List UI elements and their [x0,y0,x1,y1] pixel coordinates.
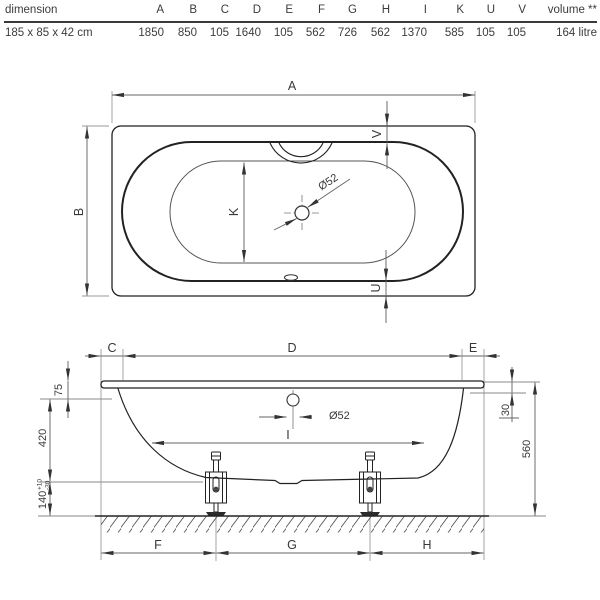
dim-label-30: 30 [500,404,512,416]
adjustable-foot-right [360,452,381,517]
top-view: A B Ø52 [72,79,475,323]
dim-label-140-minus: -30 [45,480,52,490]
dim-label-140-plus: +10 [37,479,44,490]
dim-label-H: H [422,538,431,552]
side-view: C D E [37,341,547,561]
floor-hatch [101,517,484,533]
dim-C: C [85,341,123,356]
dim-E: E [462,341,500,356]
dim-75: 75 [53,361,68,418]
dim-label-75: 75 [53,384,65,396]
technical-drawing-page: dimension A B C D E F G H I K U V volume… [0,0,600,600]
dim-label-V: V [370,129,384,138]
bathtub-drawing: A B Ø52 [0,0,600,600]
dim-G: G [217,538,370,553]
rim-bar [101,381,484,388]
tub-rim [122,142,463,281]
dim-label-140: 140 [37,491,49,509]
dim-label-C: C [107,341,116,355]
drain-plan: Ø52 [274,172,350,231]
dim-label-D: D [287,341,296,355]
dim-F: F [102,538,216,553]
dim-label-U: U [369,283,383,292]
dim-A: A [112,79,475,123]
drain-circle [295,206,309,220]
drain-diameter-label: Ø52 [316,172,340,193]
dim-V: V [370,101,387,169]
dim-B: B [72,126,109,296]
dim-30: 30 [499,367,519,422]
dim-140: 140 +10 -30 [37,479,52,516]
drain-diameter-label-side: Ø52 [329,410,350,422]
dim-label-I: I [286,428,289,442]
dim-560: 560 [521,383,535,516]
dim-label-E: E [469,341,477,355]
dim-label-F: F [154,538,162,552]
drain-circle-side [287,394,299,406]
dim-label-G: G [287,538,297,552]
dim-label-420: 420 [37,429,49,447]
adjustable-foot-left [206,452,227,517]
tub-outer-edge [112,126,475,296]
dim-label-K: K [227,207,241,216]
dim-K: K [227,163,244,263]
dim-420: 420 [37,400,50,482]
dim-label-B: B [72,208,86,216]
dim-D: D [124,341,462,356]
dim-label-560: 560 [521,440,533,458]
dim-I: I [152,428,424,443]
overflow-arcs [270,143,332,163]
drain-section: Ø52 [259,390,350,429]
waste-slot [285,275,298,281]
dim-label-A: A [288,79,297,93]
dim-H: H [371,538,484,553]
tub-basin [170,161,415,263]
